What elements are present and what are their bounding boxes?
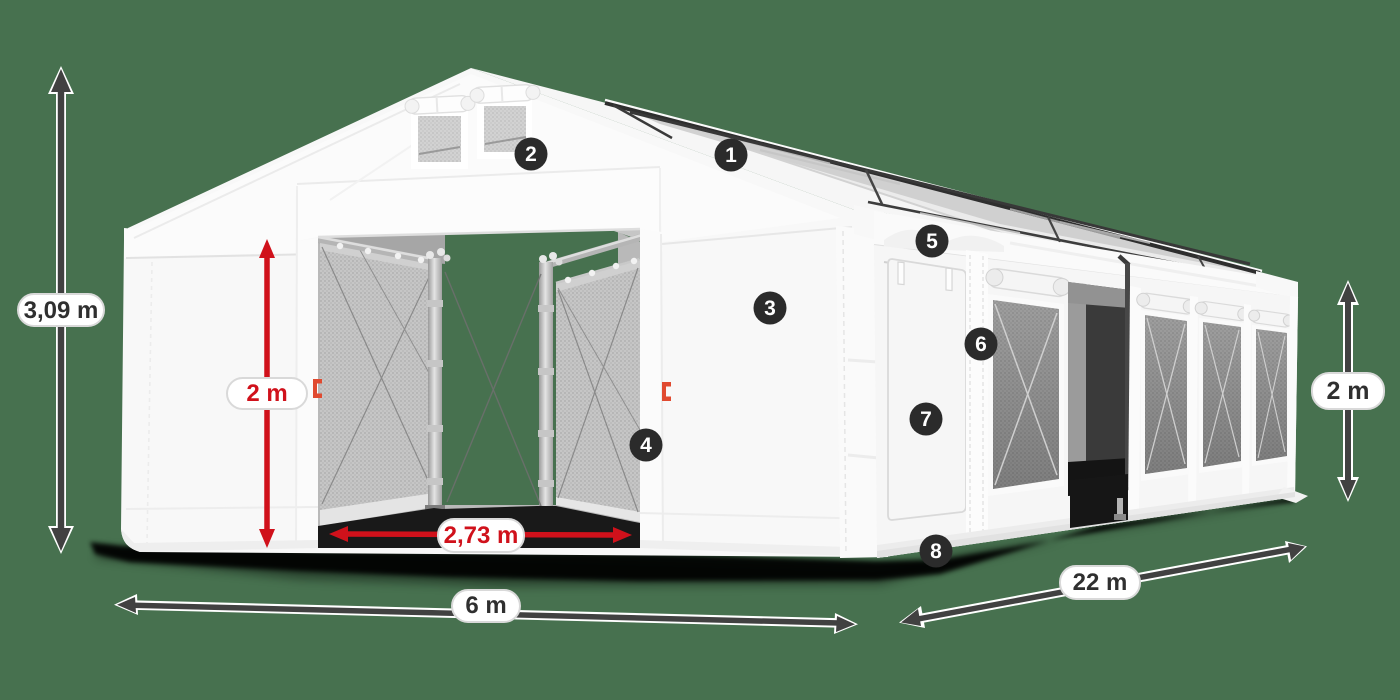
svg-text:8: 8 bbox=[930, 540, 942, 563]
svg-text:2 m: 2 m bbox=[1326, 377, 1369, 405]
svg-text:7: 7 bbox=[920, 408, 932, 431]
svg-text:22 m: 22 m bbox=[1073, 569, 1128, 596]
svg-text:2 m: 2 m bbox=[246, 380, 287, 407]
svg-text:3: 3 bbox=[764, 297, 776, 320]
svg-text:4: 4 bbox=[640, 434, 652, 457]
svg-text:1: 1 bbox=[725, 144, 737, 167]
svg-text:2,73 m: 2,73 m bbox=[444, 522, 519, 549]
svg-text:6: 6 bbox=[975, 333, 987, 356]
svg-text:2: 2 bbox=[525, 143, 537, 166]
svg-text:5: 5 bbox=[926, 230, 938, 253]
svg-text:6 m: 6 m bbox=[465, 592, 506, 619]
svg-text:3,09 m: 3,09 m bbox=[24, 297, 99, 324]
